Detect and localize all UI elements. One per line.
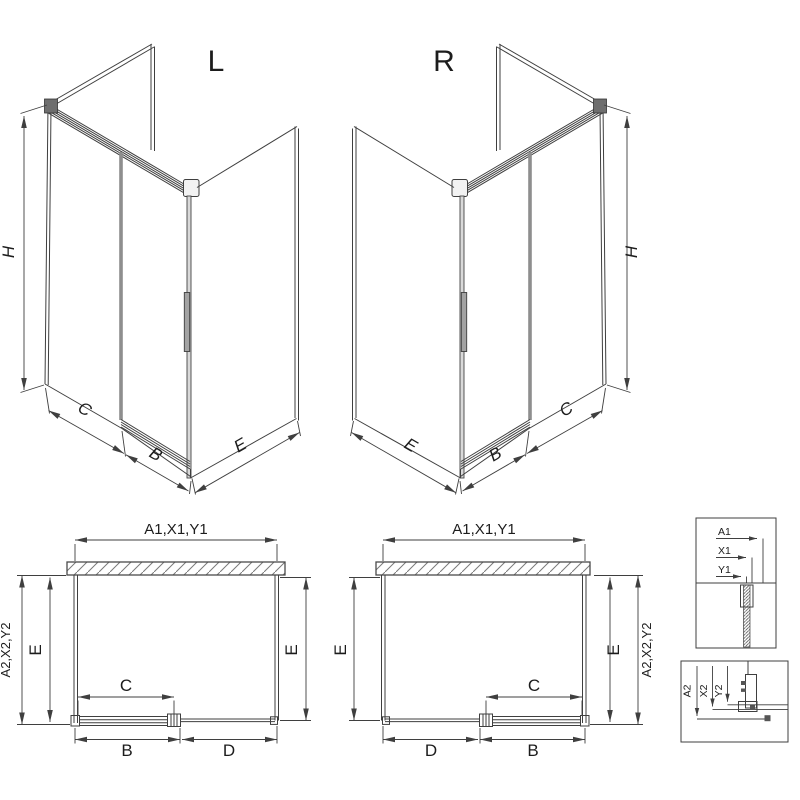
detail-seal-mark-2: [741, 689, 746, 692]
iso-right-height-dim-label: H: [622, 245, 641, 258]
plan-right-outer-depth-label: A2,X2,Y2: [639, 623, 654, 678]
iso-right-door-dim-label: B: [486, 443, 505, 465]
detail-x2-label: X2: [698, 684, 710, 697]
plan-right-depth-left-label: E: [331, 644, 350, 655]
detail-floor-profile: A2 X2 Y2: [681, 661, 788, 742]
plan-left-depth-right-label: E: [282, 644, 301, 655]
iso-right-fixed-dim-label: C: [556, 398, 577, 421]
plan-view-right: A1,X1,Y1 E E A2,X2,Y2 C D B: [331, 521, 654, 760]
plan-right-fixed-dim-label: D: [425, 741, 437, 760]
variant-label-right: R: [433, 45, 455, 78]
detail-anchor-mark: [765, 715, 771, 721]
plan-left-opening-dim-label: C: [120, 676, 132, 695]
iso-left-dimensions: [21, 105, 301, 495]
plan-left-fixed-dim-label: D: [223, 741, 235, 760]
iso-view-left: L H C B E: [0, 44, 301, 495]
iso-left-door-dim-label: B: [146, 443, 165, 465]
detail-x1-label: X1: [718, 545, 731, 557]
plan-view-left: A1,X1,Y1 A2,X2,Y2 E E C B D: [0, 521, 311, 760]
plan-left-wall-hatch: [67, 562, 285, 575]
plan-right-opening-dim-label: C: [528, 676, 540, 695]
detail-floor-rail-profile: [746, 675, 757, 709]
shower-enclosure-technical-drawing: L H C B E R H E B C A1,X1,Y1 A2,X2,Y2 E …: [0, 0, 800, 800]
detail-y1-label: Y1: [718, 564, 731, 576]
iso-right-depth-dim-label: E: [401, 434, 421, 456]
detail-seal-mark-1: [741, 681, 746, 685]
detail-a1-label: A1: [718, 526, 731, 538]
iso-left-fixed-dim-label: C: [75, 398, 96, 421]
plan-left-depth-left-label: E: [26, 644, 45, 655]
plan-left-door-dim-label: B: [121, 741, 132, 760]
plan-left-width-dim-label: A1,X1,Y1: [144, 521, 207, 538]
detail-y2-label: Y2: [713, 684, 725, 697]
detail-width-profile: A1 X1 Y1: [696, 518, 776, 648]
iso-left-depth-dim-label: E: [231, 434, 251, 456]
plan-left-outer-depth-label: A2,X2,Y2: [0, 623, 13, 678]
plan-right-depth-right-label: E: [604, 644, 623, 655]
iso-left-height-dim-label: H: [0, 245, 18, 258]
detail-a2-label: A2: [682, 684, 694, 697]
iso-view-right: R H E B C: [351, 44, 642, 495]
detail-glass-section: [744, 585, 751, 647]
diagram-svg: L H C B E R H E B C A1,X1,Y1 A2,X2,Y2 E …: [0, 0, 800, 800]
iso-right-dimensions: [351, 105, 631, 495]
plan-right-wall-hatch: [376, 562, 590, 575]
variant-label-left: L: [208, 45, 225, 78]
plan-right-door-dim-label: B: [527, 741, 538, 760]
plan-right-width-dim-label: A1,X1,Y1: [452, 521, 515, 538]
